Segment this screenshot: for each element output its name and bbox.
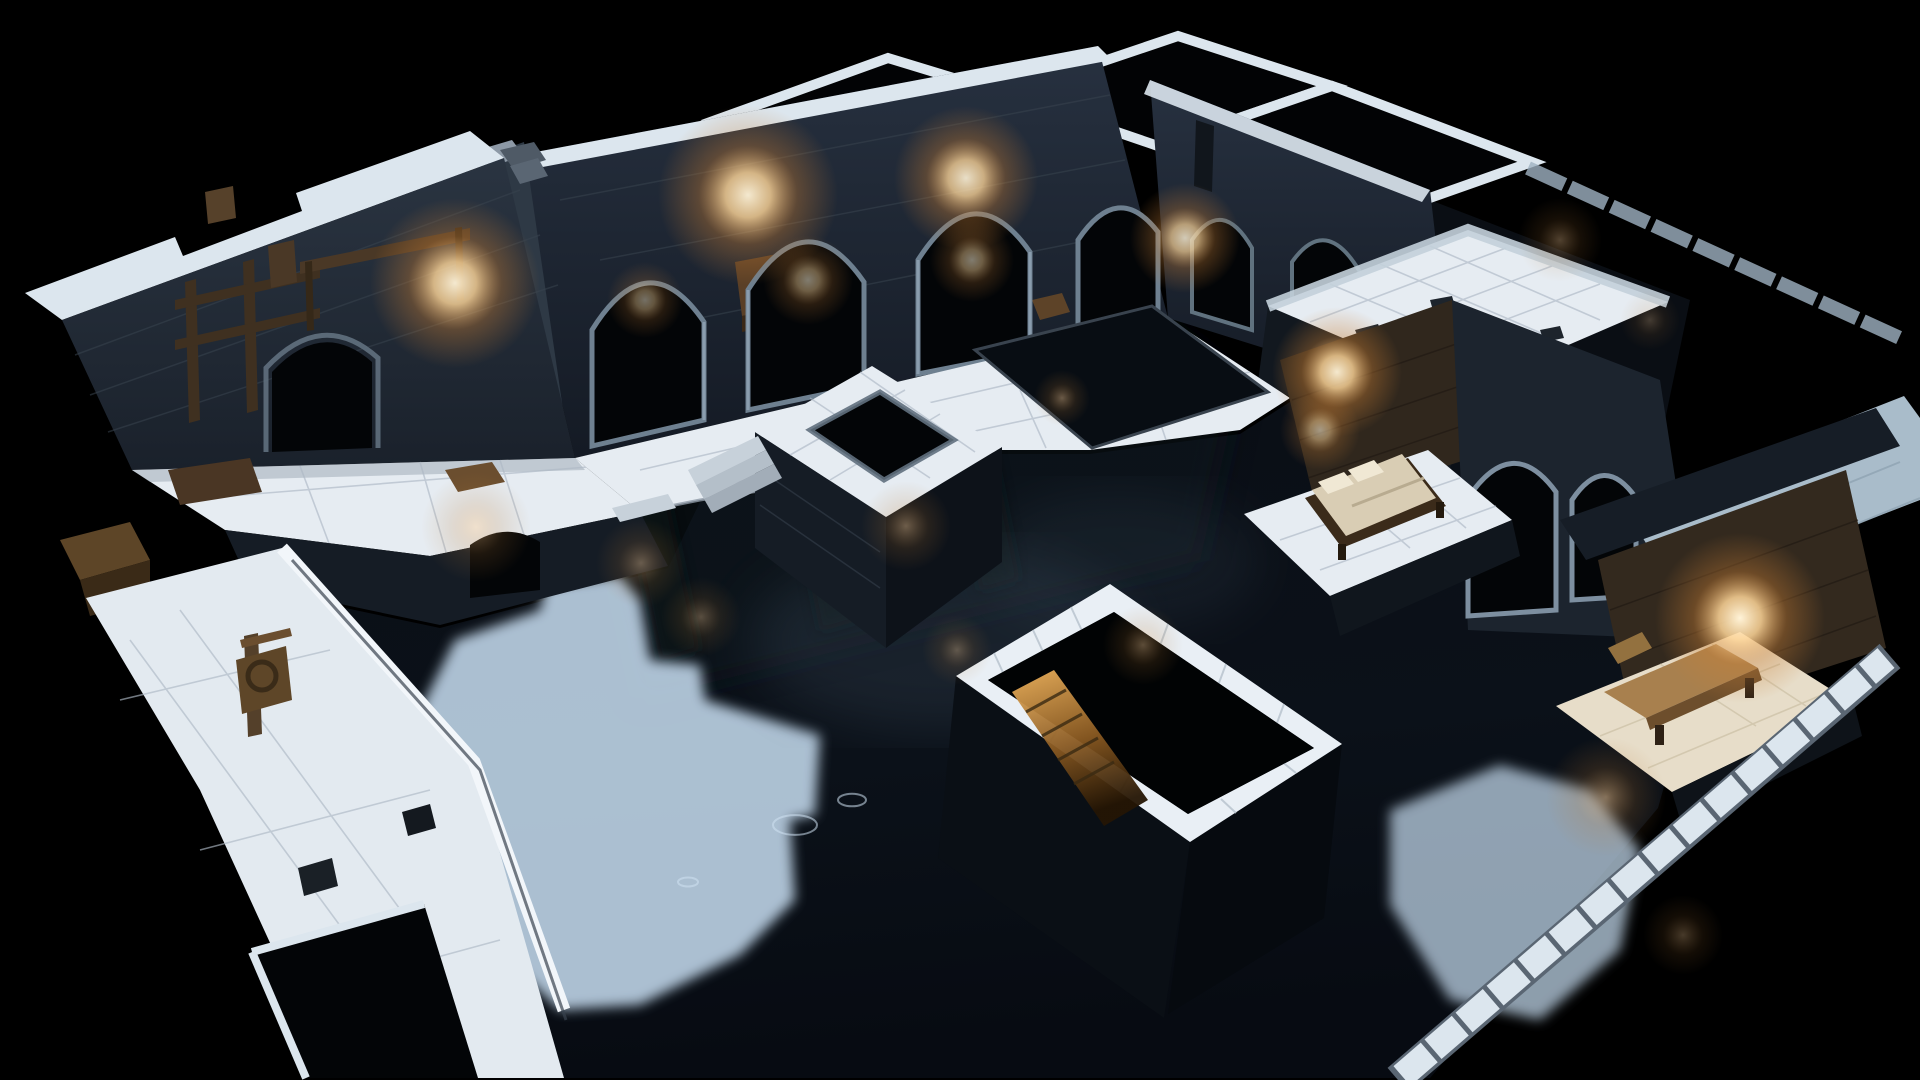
torch-glow: [763, 235, 853, 325]
torch-reflection: [661, 577, 741, 657]
torch-reflection: [1620, 290, 1680, 350]
torch-reflection: [1103, 605, 1183, 685]
torch-glow: [370, 198, 540, 368]
bed-leg: [1338, 544, 1346, 560]
torch-glow: [1130, 183, 1240, 293]
bench-leg: [1655, 725, 1664, 745]
dungeon-render: [0, 0, 1920, 1080]
torch-reflection: [1518, 198, 1602, 282]
wall-ladder: [1194, 120, 1214, 192]
torch-reflection: [1034, 370, 1090, 426]
torch-glow: [930, 218, 1014, 302]
torch-glow: [1280, 390, 1360, 470]
dungeon-scene: [0, 0, 1920, 1080]
torch-glow: [1655, 533, 1825, 703]
torch-reflection: [421, 472, 531, 582]
torch-reflection: [1546, 737, 1666, 857]
torch-reflection: [922, 615, 992, 685]
doorway-arch: [272, 342, 372, 452]
torch-reflection: [1643, 895, 1723, 975]
bed-leg: [1436, 502, 1444, 518]
torch-glow: [607, 262, 683, 338]
torch-reflection: [861, 481, 951, 571]
